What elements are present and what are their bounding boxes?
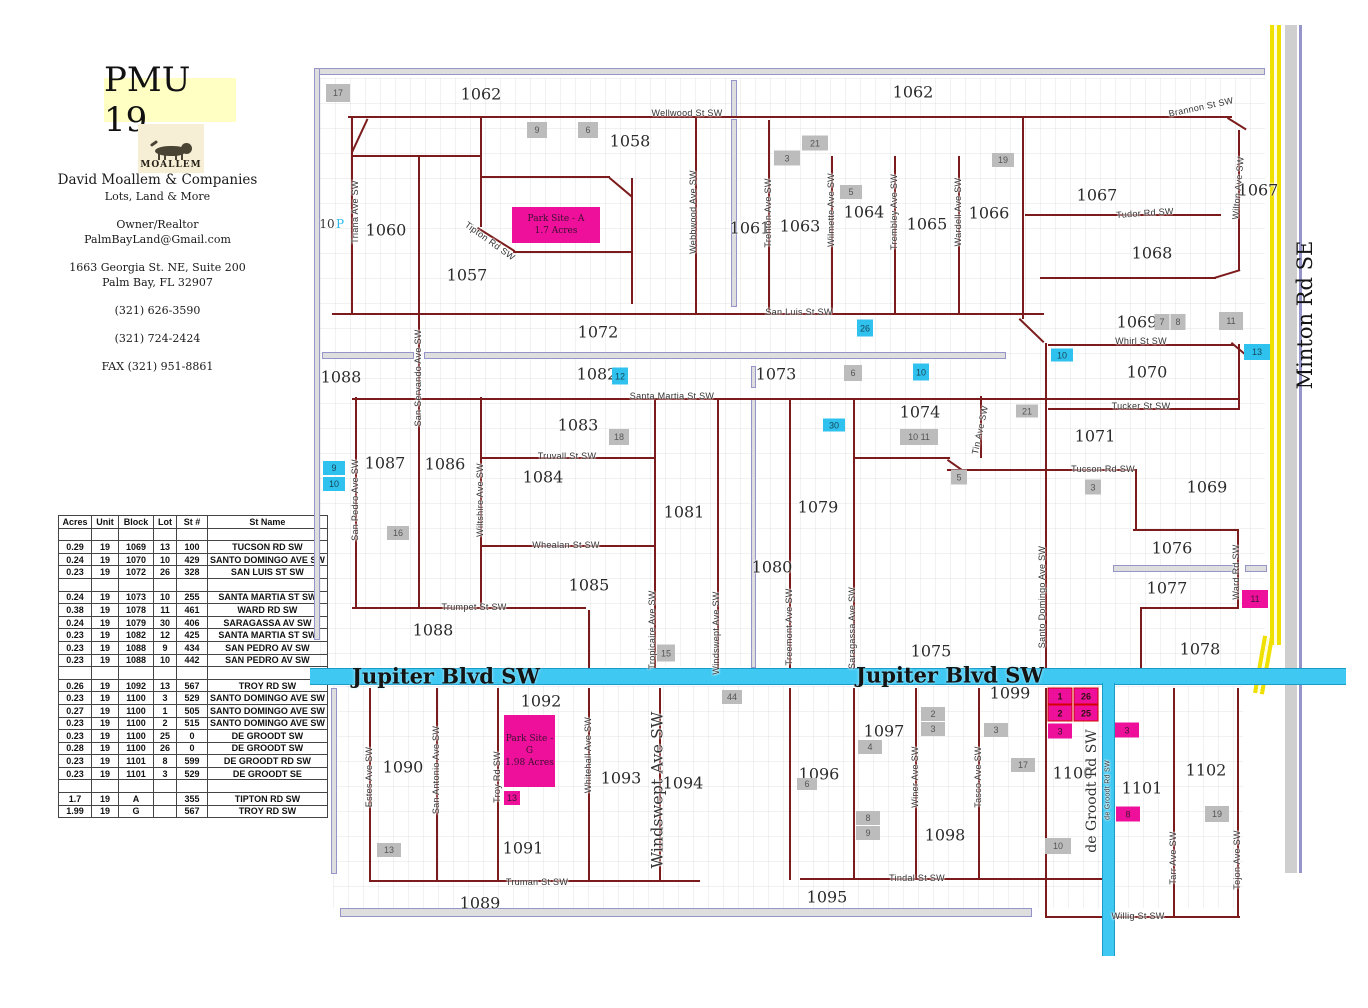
table-cell: 355: [177, 793, 208, 806]
block-number-label: 1083: [558, 416, 599, 435]
table-cell: 515: [177, 717, 208, 730]
table-row: [59, 578, 328, 591]
block-number-label: 1095: [807, 888, 848, 907]
lot-marker: 15: [657, 645, 675, 662]
table-cell: A: [119, 793, 154, 806]
table-cell: 529: [177, 767, 208, 780]
street-name-label: 10: [319, 217, 334, 231]
company-logo: MOALLEM: [138, 124, 204, 173]
table-cell: [119, 780, 154, 793]
street-name-label: de Groodt Rd SW: [1105, 760, 1112, 820]
lot-marker: 17: [326, 84, 350, 102]
table-cell: [59, 578, 92, 591]
table-header-0: Acres: [59, 516, 92, 529]
lot-marker: 6: [797, 778, 817, 790]
street-name-label: Ward Rd SW: [1231, 544, 1241, 599]
street-name-label: de Groodt Rd SW: [1084, 729, 1100, 852]
block-number-label: 1060: [366, 221, 407, 240]
street-name-label: Trumpet St SW: [441, 602, 506, 612]
block-number-label: 1079: [798, 498, 839, 517]
block-number-label: 1094: [663, 774, 704, 793]
park-site-name: Park Site - G: [504, 733, 555, 757]
block-number-label: 1080: [752, 558, 793, 577]
table-row: [59, 667, 328, 680]
street-line: [513, 251, 631, 253]
street-line: [332, 313, 1044, 315]
street-name-label: Willig St SW: [1111, 911, 1164, 921]
table-cell: 0: [177, 730, 208, 743]
park-site-acreage: 1.98 Acres: [505, 757, 554, 769]
table-cell: DE GROODT SW: [208, 730, 328, 743]
block-number-label: 1102: [1186, 761, 1227, 780]
table-cell: [177, 780, 208, 793]
street-name-label: Tropicaire Ave SW: [647, 590, 657, 669]
street-name-label: Troy Rd SW: [492, 751, 502, 803]
lot-marker: 25: [1074, 705, 1099, 722]
street-line: [588, 610, 590, 668]
street-name-label: Wardell Ave SW: [953, 178, 963, 247]
table-cell: SAN LUIS ST SW: [208, 566, 328, 579]
street-line: [1238, 344, 1240, 410]
lot-marker: 12: [612, 368, 628, 385]
table-cell: 19: [92, 717, 119, 730]
table-cell: [208, 578, 328, 591]
street-line: [1040, 277, 1216, 279]
table-cell: 3: [154, 767, 177, 780]
table-cell: 567: [177, 679, 208, 692]
street-name-label: Treemont Ave SW: [784, 588, 794, 665]
table-cell: 19: [92, 641, 119, 654]
street-line: [1140, 607, 1237, 609]
street-name-label: Truman St SW: [506, 877, 568, 887]
lot-marker: 19: [1205, 806, 1229, 822]
block-number-label: 1074: [900, 403, 941, 422]
table-cell: 10: [154, 591, 177, 604]
street-line: [1045, 688, 1047, 918]
table-row: 0.231911003529SANTO DOMINGO AVE SW: [59, 692, 328, 705]
easement-band: [318, 68, 1265, 75]
easement-band: [1113, 565, 1235, 572]
table-cell: [177, 667, 208, 680]
table-cell: 0.23: [59, 629, 92, 642]
street-name-label: Santa Martia St SW: [630, 391, 714, 401]
park-site-name: Park Site - A: [528, 213, 585, 225]
table-cell: 30: [154, 616, 177, 629]
table-cell: 1100: [119, 717, 154, 730]
block-number-label: 1067: [1238, 181, 1279, 200]
block-number-label: 1087: [365, 454, 406, 473]
block-number-label: 1076: [1152, 539, 1193, 558]
table-cell: [119, 667, 154, 680]
park-site-acreage: 1.7 Acres: [535, 225, 578, 237]
block-number-label: 1093: [601, 769, 642, 788]
block-number-label: 1078: [1180, 640, 1221, 659]
table-cell: 1073: [119, 591, 154, 604]
table-cell: SAN PEDRO AV SW: [208, 641, 328, 654]
table-cell: 11: [154, 604, 177, 617]
lot-marker: 21: [802, 136, 828, 151]
table-header-5: St Name: [208, 516, 328, 529]
block-number-label: 1064: [844, 203, 885, 222]
table-cell: 461: [177, 604, 208, 617]
easement-band: [424, 352, 1006, 359]
page-title: PMU 19: [104, 78, 236, 122]
table-cell: 19: [92, 692, 119, 705]
table-cell: 19: [92, 604, 119, 617]
street-line: [1133, 529, 1237, 531]
minton-road-edge: [1299, 25, 1302, 873]
lot-marker: 5: [840, 185, 862, 199]
table-cell: 26: [154, 742, 177, 755]
street-name-label: Tejon Ave SW: [1232, 830, 1242, 889]
lot-marker: 10: [1045, 838, 1071, 854]
table-cell: [59, 780, 92, 793]
easement-band: [751, 398, 756, 668]
easement-band: [314, 68, 320, 640]
street-name-label: San Servando Ave SW: [413, 329, 423, 426]
table-cell: [92, 528, 119, 541]
park-site: Park Site - A1.7 Acres: [512, 207, 600, 243]
table-cell: WARD RD SW: [208, 604, 328, 617]
table-cell: 8: [154, 755, 177, 768]
block-number-label: 1057: [447, 266, 488, 285]
table-row: 0.231910889434SAN PEDRO AV SW: [59, 641, 328, 654]
table-cell: 3: [154, 692, 177, 705]
address-line2: Palm Bay, FL 32907: [40, 275, 275, 290]
street-line: [800, 878, 1110, 880]
lot-marker: 9: [527, 122, 547, 138]
street-name-label: Truvall St SW: [538, 451, 597, 461]
table-cell: 255: [177, 591, 208, 604]
table-cell: 0.23: [59, 730, 92, 743]
street-name-label: Windswept Ave SW: [648, 712, 667, 869]
street-name-label: Tucson Rd SW: [1071, 464, 1135, 474]
table-row: 0.3819107811461WARD RD SW: [59, 604, 328, 617]
street-name-label: Whirl St SW: [1115, 336, 1167, 346]
table-row: 0.231911013529DE GROODT SE: [59, 767, 328, 780]
table-row: 0.2319108810442SAN PEDRO AV SW: [59, 654, 328, 667]
table-cell: 599: [177, 755, 208, 768]
lot-marker: 3: [984, 723, 1008, 737]
table-cell: [154, 667, 177, 680]
block-number-label: 1098: [925, 826, 966, 845]
table-cell: 19: [92, 616, 119, 629]
block-number-label: 1091: [503, 839, 544, 858]
table-row: [59, 780, 328, 793]
lot-marker: 13: [1244, 344, 1270, 360]
table-cell: 406: [177, 616, 208, 629]
table-cell: DE GROODT SE: [208, 767, 328, 780]
lot-marker: 1: [1048, 688, 1073, 705]
table-cell: 1088: [119, 641, 154, 654]
company-tagline: Lots, Land & More: [40, 190, 275, 203]
block-number-label: 1067: [1077, 186, 1118, 205]
table-row: 0.2319108212425SANTA MARTIA ST SW: [59, 629, 328, 642]
block-number-label: 1090: [383, 758, 424, 777]
lot-marker: 26: [1074, 688, 1099, 705]
minton-road-label: Minton Rd SE: [1293, 241, 1317, 390]
block-number-label: 1072: [578, 323, 619, 342]
street-name-label: Triana Ave SW: [350, 180, 360, 243]
table-cell: 434: [177, 641, 208, 654]
table-cell: 0: [177, 742, 208, 755]
street-name-label: Tarr Ave SW: [1168, 831, 1178, 884]
street-name-label: Trenton Ave SW: [763, 178, 773, 247]
table-cell: 1069: [119, 541, 154, 554]
lot-marker: 3: [774, 151, 800, 166]
table-cell: 19: [92, 629, 119, 642]
easement-band: [322, 352, 414, 359]
table-cell: 10: [154, 553, 177, 566]
lot-marker: 10: [913, 364, 929, 381]
table-header-4: St #: [177, 516, 208, 529]
block-number-label: 1084: [523, 468, 564, 487]
block-number-label: 1070: [1127, 363, 1168, 382]
lot-marker: 10: [1051, 349, 1073, 362]
table-cell: 0.26: [59, 679, 92, 692]
table-cell: [119, 578, 154, 591]
lot-marker: 44: [722, 690, 742, 704]
lot-marker: 8: [1116, 807, 1140, 822]
table-cell: 1092: [119, 679, 154, 692]
table-cell: 19: [92, 742, 119, 755]
table-cell: 19: [92, 566, 119, 579]
table-cell: 25: [154, 730, 177, 743]
table-cell: 0.24: [59, 553, 92, 566]
street-line: [1135, 469, 1137, 531]
table-header-3: Lot: [154, 516, 177, 529]
table-cell: 1101: [119, 755, 154, 768]
lot-table: AcresUnitBlockLotSt #St Name 0.291910691…: [58, 515, 328, 818]
street-line: [1022, 117, 1024, 319]
lot-marker: 19: [992, 153, 1014, 167]
table-cell: SANTO DOMINGO AVE SW: [208, 717, 328, 730]
lot-marker: 9: [856, 826, 880, 840]
table-cell: 1100: [119, 742, 154, 755]
table-cell: SANTO DOMINGO AVE SW: [208, 704, 328, 717]
block-number-label: 1089: [460, 894, 501, 913]
lot-marker: 3: [1115, 723, 1139, 738]
table-cell: 1079: [119, 616, 154, 629]
table-cell: 1100: [119, 704, 154, 717]
table-row: 0.2319107226328SAN LUIS ST SW: [59, 566, 328, 579]
table-cell: G: [119, 805, 154, 818]
plat-map-page: { "header": { "title": "PMU 19", "logo_t…: [0, 0, 1368, 1008]
table-cell: SANTO DOMINGO AVE SW: [208, 692, 328, 705]
table-cell: [154, 805, 177, 818]
table-row: 0.28191100260DE GROODT SW: [59, 742, 328, 755]
table-cell: 19: [92, 654, 119, 667]
lot-marker: 17: [1011, 758, 1035, 772]
block-number-label: 1088: [413, 621, 454, 640]
street-name-label: San Luis St SW: [765, 307, 832, 317]
block-number-label: 1075: [911, 642, 952, 661]
table-cell: SARAGASSA AV SW: [208, 616, 328, 629]
table-cell: 0.27: [59, 704, 92, 717]
table-row: 0.2619109213567TROY RD SW: [59, 679, 328, 692]
jupiter-blvd-label-west: Jupiter Blvd SW: [352, 664, 540, 689]
street-line: [351, 155, 481, 157]
table-cell: 19: [92, 679, 119, 692]
table-cell: 100: [177, 541, 208, 554]
table-cell: SANTA MARTIA ST SW: [208, 629, 328, 642]
table-header-2: Block: [119, 516, 154, 529]
easement-band: [340, 908, 1032, 917]
table-row: 0.231911002515SANTO DOMINGO AVE SW: [59, 717, 328, 730]
lot-marker: 26: [857, 320, 873, 337]
lot-marker: 21: [1016, 405, 1038, 418]
block-number-label: 1101: [1122, 779, 1163, 798]
street-name-label: San Antonio Ave SW: [431, 726, 441, 814]
table-cell: [92, 667, 119, 680]
lot-marker: 13: [377, 843, 401, 857]
table-row: 0.271911001505SANTO DOMINGO AVE SW: [59, 704, 328, 717]
lot-marker: 11: [1219, 312, 1243, 330]
table-cell: 19: [92, 793, 119, 806]
easement-band: [731, 119, 737, 307]
table-cell: 1101: [119, 767, 154, 780]
street-name-label: Windswept Ave SW: [711, 591, 721, 674]
street-line: [480, 117, 482, 227]
owner-role: Owner/Realtor: [40, 217, 275, 232]
table-cell: 0.23: [59, 717, 92, 730]
table-cell: 26: [154, 566, 177, 579]
table-cell: [208, 780, 328, 793]
table-cell: 12: [154, 629, 177, 642]
table-cell: SANTA MARTIA ST SW: [208, 591, 328, 604]
lot-marker: 2: [1048, 705, 1073, 722]
street-name-label: Whealan St SW: [532, 540, 599, 550]
table-cell: TUCSON RD SW: [208, 541, 328, 554]
lot-marker: 3: [1048, 724, 1072, 739]
table-cell: 13: [154, 679, 177, 692]
table-cell: DE GROODT SW: [208, 742, 328, 755]
table-cell: 567: [177, 805, 208, 818]
lot-marker: 8: [1171, 314, 1186, 330]
street-name-label: Saragassa Ave SW: [847, 587, 857, 669]
block-number-label: 1069: [1187, 478, 1228, 497]
table-row: 0.231911018599DE GROODT RD SW: [59, 755, 328, 768]
lot-marker: 6: [844, 365, 862, 381]
block-number-label: 1066: [969, 204, 1010, 223]
block-number-label: 1073: [756, 365, 797, 384]
table-cell: 19: [92, 541, 119, 554]
block-number-label: 1062: [893, 83, 934, 102]
table-cell: 9: [154, 641, 177, 654]
logo-text: MOALLEM: [140, 160, 201, 170]
street-name-label: Wellwood St SW: [651, 108, 722, 118]
table-cell: 0.24: [59, 616, 92, 629]
address-line1: 1663 Georgia St. NE, Suite 200: [40, 260, 275, 275]
street-name-label: San Pedro Ave SW: [350, 459, 360, 541]
table-cell: [154, 793, 177, 806]
table-cell: 529: [177, 692, 208, 705]
table-cell: [59, 667, 92, 680]
email: PalmBayLand@Gmail.com: [40, 232, 275, 247]
street-name-label: Winer Ave SW: [910, 746, 920, 807]
block-number-label: 1071: [1075, 427, 1116, 446]
table-cell: [208, 528, 328, 541]
fax: FAX (321) 951-8861: [40, 359, 275, 374]
table-row: [59, 528, 328, 541]
table-cell: [154, 780, 177, 793]
lot-marker: 7: [1155, 314, 1170, 330]
street-name-label: Tindal St SW: [889, 873, 945, 883]
block-number-label: 1077: [1147, 579, 1188, 598]
table-cell: 425: [177, 629, 208, 642]
table-cell: 0.23: [59, 692, 92, 705]
table-cell: 505: [177, 704, 208, 717]
lot-marker: 18: [609, 429, 629, 445]
contact-block: David Moallem & Companies Lots, Land & M…: [40, 172, 275, 374]
easement-band: [731, 80, 737, 118]
table-header-1: Unit: [92, 516, 119, 529]
table-cell: SAN PEDRO AV SW: [208, 654, 328, 667]
block-number-label: 1068: [1132, 244, 1173, 263]
lot-marker: 30: [823, 419, 845, 432]
phone2: (321) 724-2424: [40, 331, 275, 346]
lion-icon: [149, 142, 193, 160]
table-cell: 19: [92, 591, 119, 604]
table-cell: 19: [92, 755, 119, 768]
table-row: 0.2419107930406SARAGASSA AV SW: [59, 616, 328, 629]
table-row: 0.2419107010429SANTO DOMINGO AVE SW: [59, 553, 328, 566]
lot-marker: 4: [858, 740, 882, 754]
street-name-label: Santo Domingo Ave SW: [1037, 546, 1047, 648]
company-name: David Moallem & Companies: [40, 172, 275, 188]
table-cell: [177, 578, 208, 591]
lot-marker: 3: [1085, 480, 1101, 495]
street-name-label: Wiltshire Ave SW: [475, 463, 485, 537]
table-cell: 0.28: [59, 742, 92, 755]
block-number-label: 1097: [864, 722, 905, 741]
table-cell: 0.29: [59, 541, 92, 554]
table-cell: 13: [154, 541, 177, 554]
table-row: 0.2919106913100TUCSON RD SW: [59, 541, 328, 554]
table-cell: 0.24: [59, 591, 92, 604]
easement-band: [331, 688, 337, 874]
table-row: 0.2419107310255SANTA MARTIA ST SW: [59, 591, 328, 604]
table-cell: 328: [177, 566, 208, 579]
block-number-label: 1058: [610, 132, 651, 151]
table-cell: [59, 528, 92, 541]
street-name-label: Webbwood Ave SW: [688, 170, 698, 254]
street-name-label: Trembley Ave SW: [889, 174, 899, 250]
table-cell: 1100: [119, 730, 154, 743]
street-line: [853, 688, 855, 880]
lot-marker: 10 11: [900, 429, 938, 445]
table-cell: [92, 780, 119, 793]
block-number-label: 1069: [1117, 313, 1158, 332]
table-cell: DE GROODT RD SW: [208, 755, 328, 768]
table-cell: 0.23: [59, 767, 92, 780]
lot-marker: 8: [856, 811, 880, 825]
street-name-label: Whitehall Ave SW: [583, 717, 593, 793]
table-cell: 19: [92, 704, 119, 717]
block-number-label: 1062: [461, 85, 502, 104]
table-cell: [154, 528, 177, 541]
lot-marker: 11: [1242, 590, 1268, 608]
table-cell: 1078: [119, 604, 154, 617]
street-line: [482, 176, 610, 178]
block-number-label: 1088: [321, 368, 362, 387]
lot-marker: 5: [951, 470, 967, 485]
street-line: [352, 398, 1238, 400]
table-cell: 10: [154, 654, 177, 667]
block-number-label: 1063: [780, 217, 821, 236]
table-cell: 19: [92, 730, 119, 743]
lot-marker: 3: [921, 722, 945, 736]
